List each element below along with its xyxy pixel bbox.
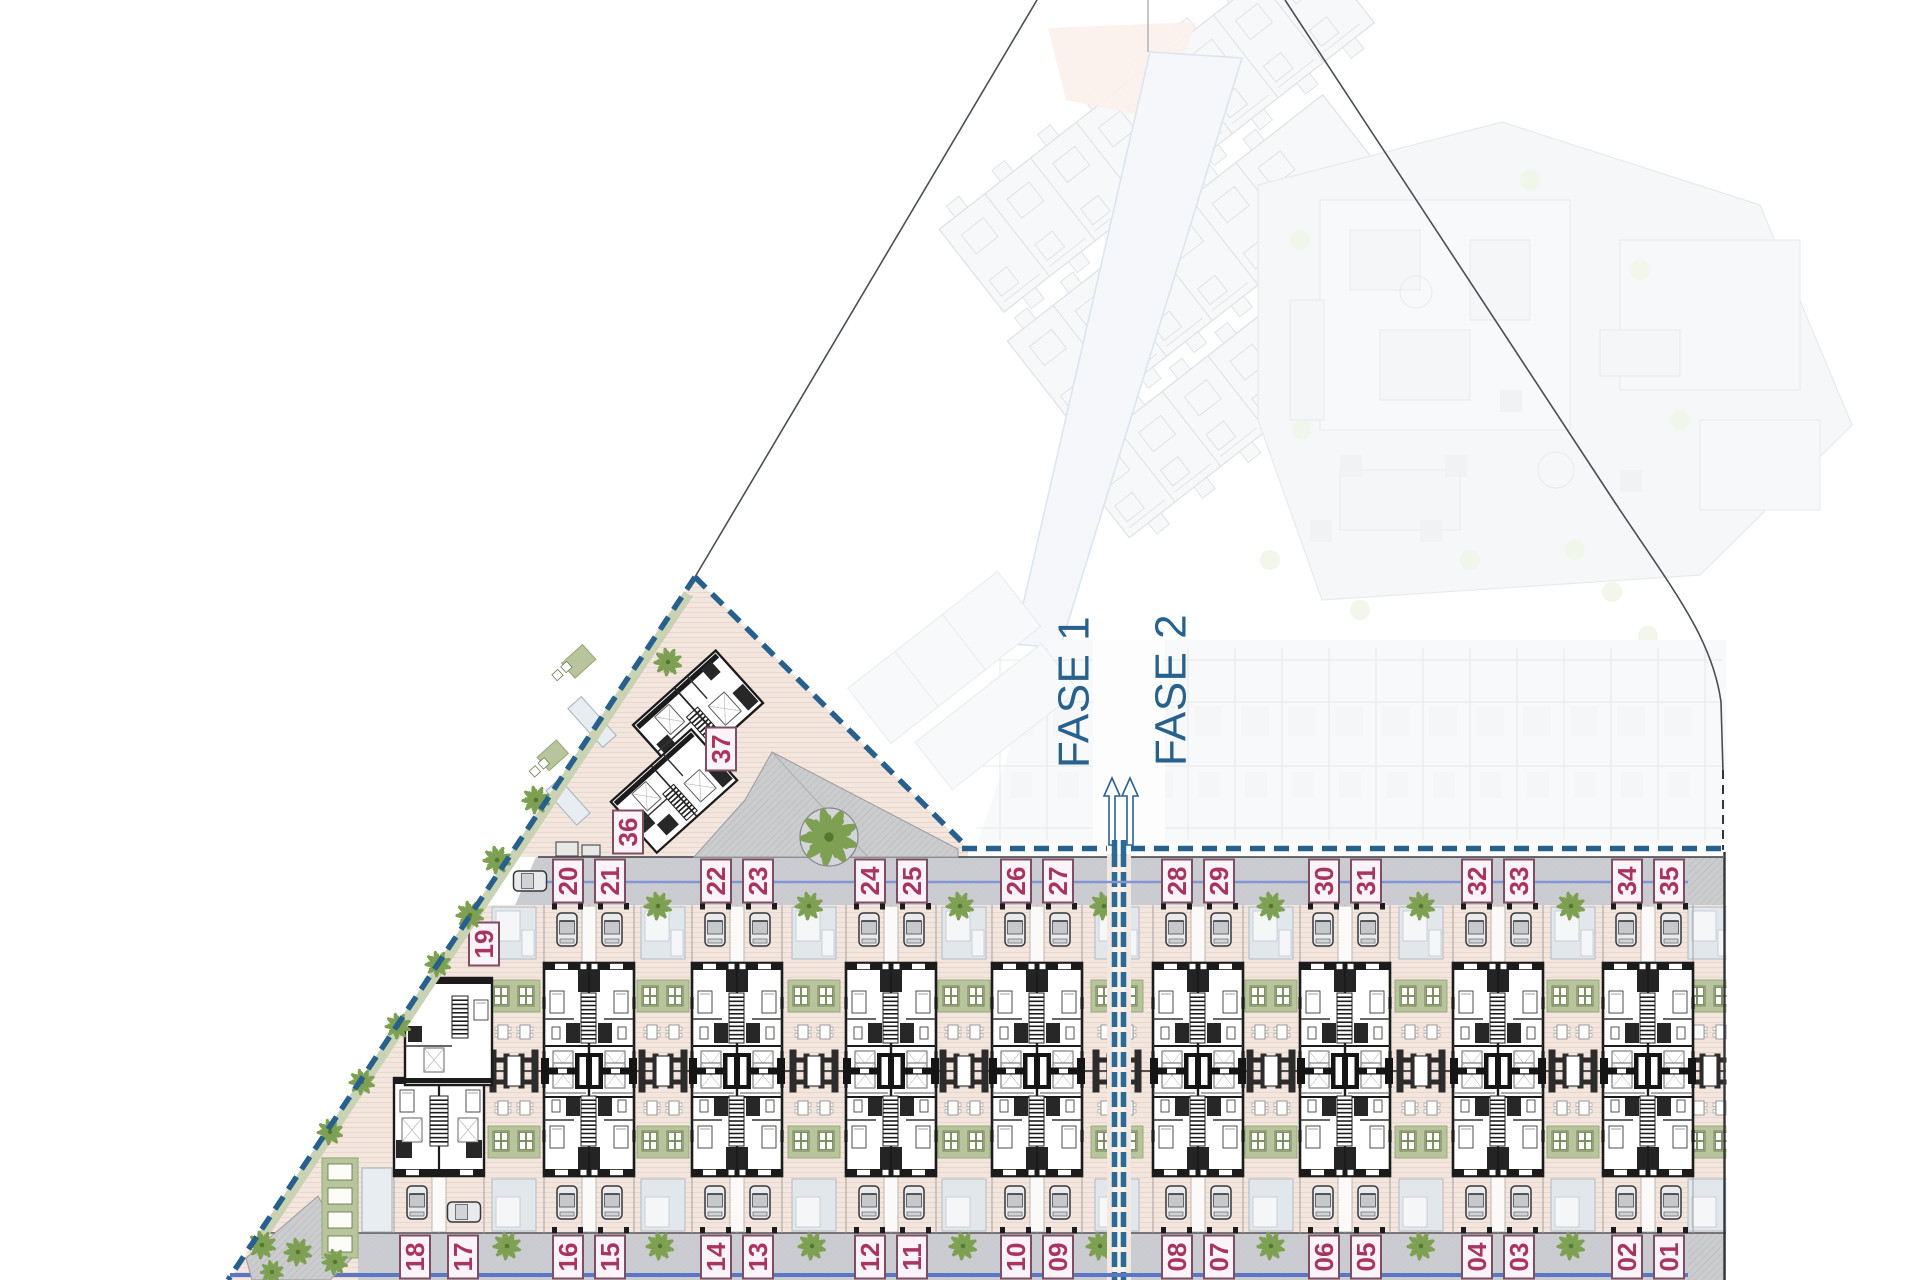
- svg-text:07: 07: [1204, 1243, 1234, 1272]
- svg-text:28: 28: [1162, 867, 1192, 896]
- svg-text:02: 02: [1612, 1243, 1642, 1272]
- svg-text:01: 01: [1654, 1243, 1684, 1272]
- svg-text:23: 23: [743, 867, 773, 896]
- svg-text:14: 14: [701, 1242, 731, 1271]
- svg-text:27: 27: [1043, 867, 1073, 896]
- svg-text:34: 34: [1612, 866, 1642, 895]
- svg-text:09: 09: [1043, 1243, 1073, 1272]
- svg-text:32: 32: [1462, 867, 1492, 896]
- svg-text:FASE 2: FASE 2: [1147, 614, 1196, 766]
- svg-text:35: 35: [1654, 867, 1684, 896]
- svg-text:31: 31: [1351, 867, 1381, 896]
- svg-text:10: 10: [1001, 1243, 1031, 1272]
- svg-text:08: 08: [1162, 1243, 1192, 1272]
- svg-text:22: 22: [701, 867, 731, 896]
- svg-text:13: 13: [743, 1243, 773, 1272]
- svg-text:16: 16: [553, 1243, 583, 1272]
- svg-text:25: 25: [897, 867, 927, 896]
- svg-text:03: 03: [1504, 1243, 1534, 1272]
- svg-text:30: 30: [1309, 867, 1339, 896]
- svg-text:06: 06: [1309, 1243, 1339, 1272]
- svg-text:05: 05: [1351, 1243, 1381, 1272]
- svg-text:33: 33: [1504, 867, 1534, 896]
- svg-text:FASE 1: FASE 1: [1050, 616, 1099, 768]
- svg-text:21: 21: [595, 867, 625, 896]
- svg-text:26: 26: [1001, 867, 1031, 896]
- svg-text:18: 18: [400, 1243, 430, 1272]
- svg-text:20: 20: [553, 867, 583, 896]
- svg-text:29: 29: [1204, 867, 1234, 896]
- svg-text:24: 24: [855, 866, 885, 895]
- svg-text:37: 37: [706, 735, 736, 764]
- svg-text:36: 36: [613, 818, 643, 847]
- svg-text:04: 04: [1462, 1242, 1492, 1271]
- svg-text:12: 12: [855, 1243, 885, 1272]
- svg-text:17: 17: [448, 1243, 478, 1272]
- svg-text:11: 11: [897, 1243, 927, 1271]
- svg-text:15: 15: [595, 1243, 625, 1272]
- svg-text:19: 19: [469, 930, 499, 959]
